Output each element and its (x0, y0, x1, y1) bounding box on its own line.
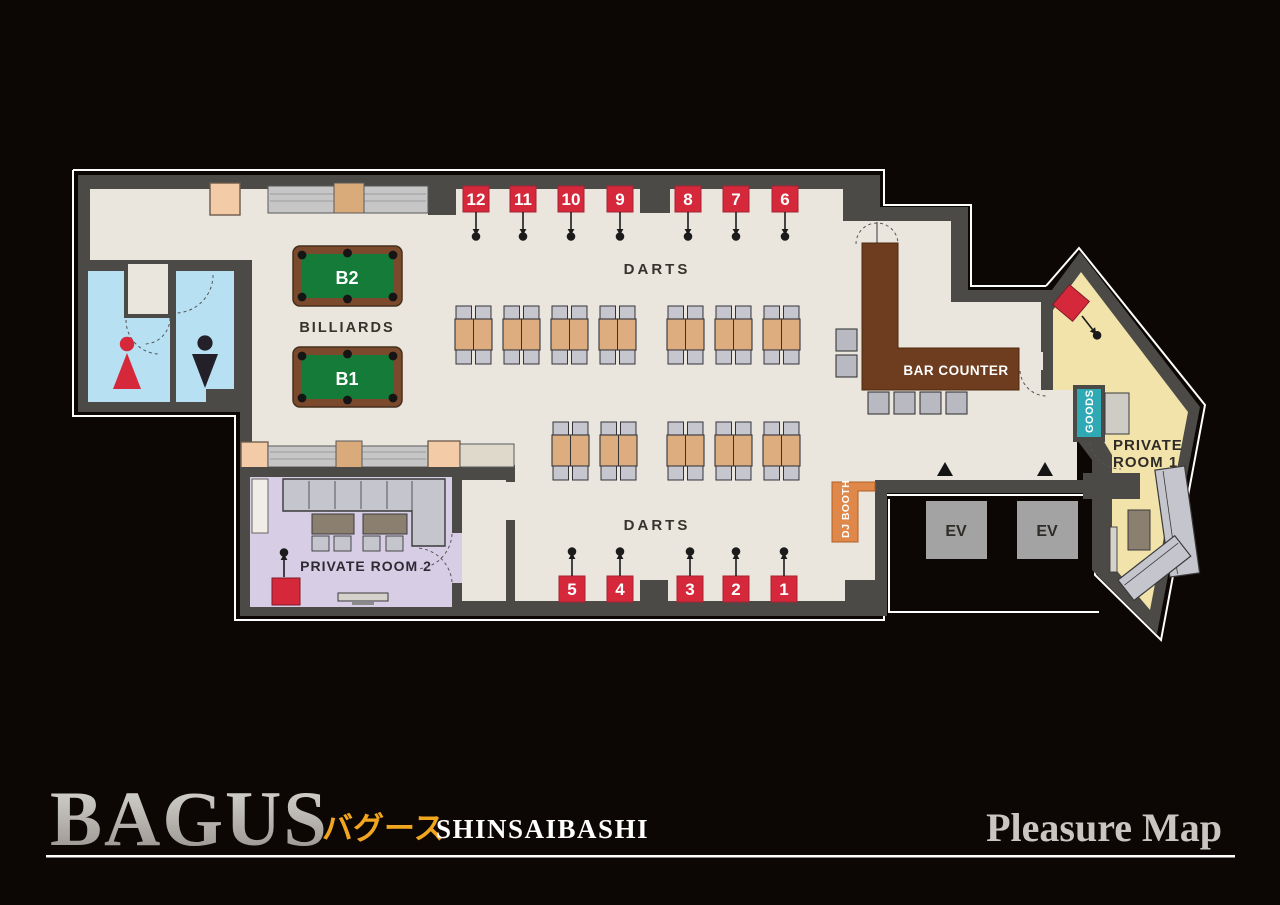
column (210, 183, 240, 215)
brand-kana: バグース (322, 811, 444, 846)
svg-text:10: 10 (562, 190, 581, 209)
bar-stool (836, 329, 857, 351)
stool (334, 536, 351, 551)
billiards-label: BILLIARDS (299, 320, 394, 336)
billiard-table-b2-label: B2 (335, 268, 358, 288)
branch-name: SHINSAIBASHI (436, 814, 649, 844)
svg-text:6: 6 (780, 190, 789, 209)
svg-text:1: 1 (779, 580, 788, 599)
map-title: Pleasure Map (986, 805, 1222, 850)
svg-text:8: 8 (683, 190, 692, 209)
private-room-1-label-line1: PRIVATE (1113, 437, 1183, 454)
goods-label: GOODS (1084, 390, 1096, 433)
stool (312, 536, 329, 551)
column (241, 442, 268, 470)
column (428, 441, 460, 470)
billiard-table-b1-label: B1 (335, 369, 358, 389)
low-table (1128, 510, 1150, 550)
bar-stool (836, 355, 857, 377)
svg-text:4: 4 (615, 580, 625, 599)
bar-stool (946, 392, 967, 414)
billiards-area: B2 B1 BILLIARDS (293, 246, 402, 407)
elevator-left-label: EV (945, 523, 967, 540)
svg-text:3: 3 (685, 580, 694, 599)
stool (386, 536, 403, 551)
low-table (312, 514, 354, 534)
floor-plan-canvas: B2 B1 BILLIARDS 12 11 10 9 8 (0, 0, 1280, 905)
table-seating-top-row (455, 306, 800, 364)
corridor (462, 480, 506, 601)
restrooms (78, 260, 240, 412)
bar-stool (868, 392, 889, 414)
bar-stool (920, 392, 941, 414)
shelf (1105, 393, 1129, 434)
svg-text:2: 2 (731, 580, 740, 599)
darts-top-label: DARTS (624, 261, 691, 278)
bench (460, 444, 514, 467)
darts-bottom-label: DARTS (624, 517, 691, 534)
door-opening (452, 533, 462, 583)
svg-text:9: 9 (615, 190, 624, 209)
bar-counter-label: BAR COUNTER (903, 363, 1008, 378)
low-table (363, 514, 407, 534)
elevator-right-label: EV (1036, 523, 1058, 540)
tv-panel (1110, 527, 1117, 572)
footer-divider (46, 855, 1235, 858)
column (336, 441, 362, 470)
bar-stool (894, 392, 915, 414)
column (334, 183, 364, 213)
restroom-vestibule (126, 262, 170, 316)
brand-logo: BAGUS (50, 775, 329, 862)
private-room-2-label: PRIVATE ROOM 2 (300, 558, 432, 574)
svg-text:12: 12 (467, 190, 486, 209)
dartboard (272, 578, 300, 605)
dj-booth-label: DJ BOOTH (840, 480, 852, 538)
svg-text:5: 5 (567, 580, 576, 599)
pleasure-map-page: B2 B1 BILLIARDS 12 11 10 9 8 (0, 0, 1280, 905)
private-room-2: PRIVATE ROOM 2 (240, 467, 506, 615)
stool (363, 536, 380, 551)
tv-panel (338, 593, 388, 601)
shelf (252, 479, 268, 533)
svg-text:11: 11 (514, 190, 532, 209)
svg-text:7: 7 (731, 190, 740, 209)
